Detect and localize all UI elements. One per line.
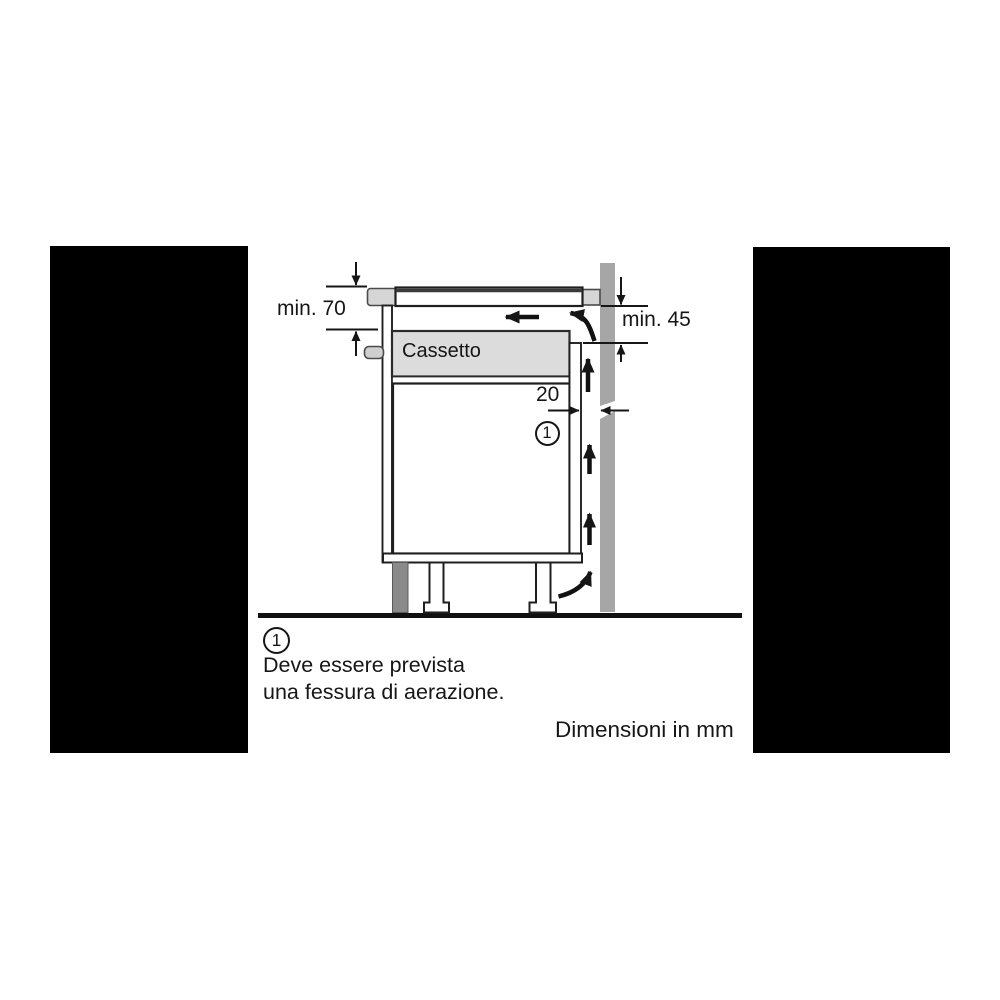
cabinet-interior [393,384,570,554]
footnote-line2: una fessura di aerazione. [263,682,504,704]
cabinet-leg-left [424,563,449,613]
drawer-label: Cassetto [402,341,481,361]
dim-label-20: 20 [536,384,559,405]
footnote-1-marker: 1 [263,627,290,654]
dim-label-min70: min. 70 [277,298,346,319]
wall-upper [600,263,615,406]
plinth-panel [393,563,409,613]
callout-1-number: 1 [542,424,551,443]
airflow-arrow-curve-top [571,313,595,341]
callout-1-marker: 1 [535,421,560,446]
drawer-handle [365,347,384,359]
figure-canvas: min. 70 min. 45 20 Cassetto 1 1 Deve ess… [0,0,1000,1000]
worktop-left-section [368,289,398,306]
airflow-arrow-curve-bottom [559,572,591,597]
dim-label-min45: min. 45 [622,309,691,330]
footnote-line1: Deve essere prevista [263,655,465,677]
units-note: Dimensioni in mm [555,719,734,742]
left-black-mask [50,246,248,753]
right-black-mask [753,247,950,753]
cabinet-back-panel [570,343,582,554]
cabinet-bottom-panel [383,554,582,563]
installation-diagram [0,0,1000,1000]
footnote-1-number: 1 [272,630,282,651]
cabinet-leg-right [530,563,557,613]
cabinet-front-panel [383,306,393,563]
wall-lower [600,411,615,612]
